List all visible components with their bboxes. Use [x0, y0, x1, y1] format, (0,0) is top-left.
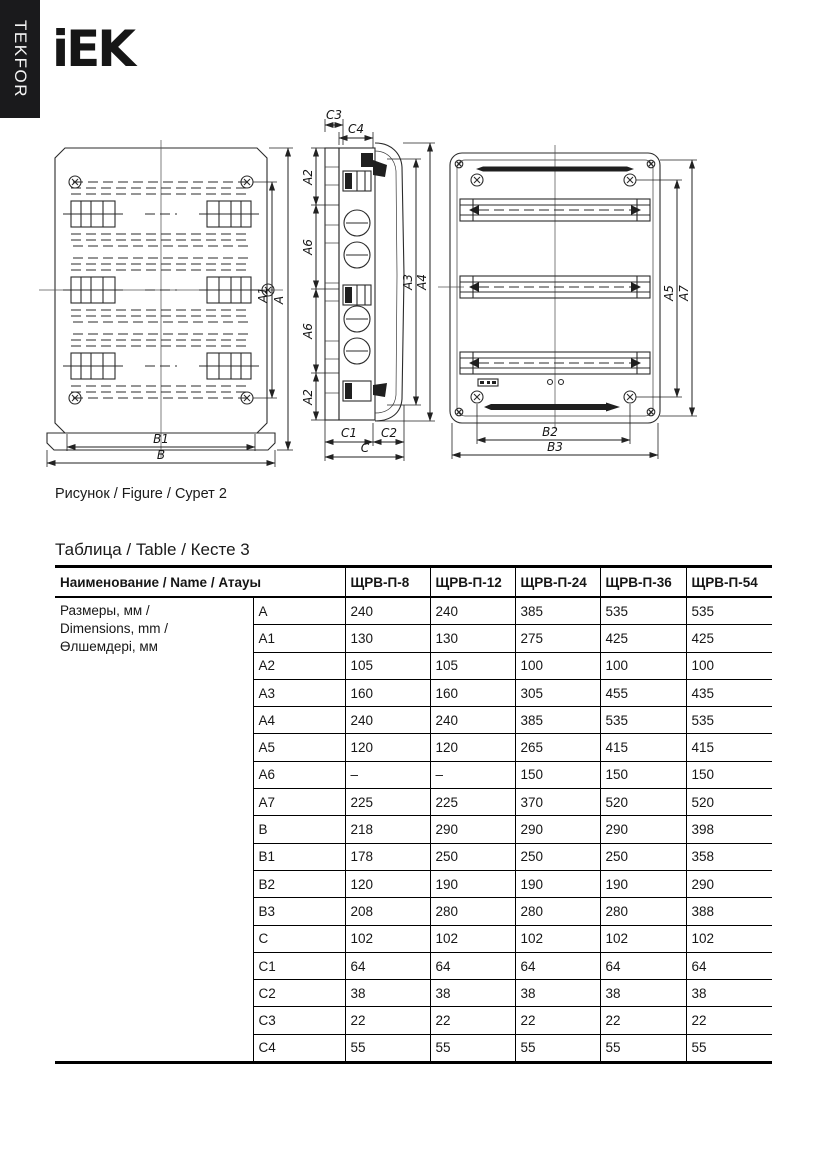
- dimension-cell: C4: [253, 1034, 345, 1062]
- value-cell: 102: [600, 925, 686, 952]
- dim-label-b3: B3: [547, 440, 563, 454]
- table-row: Размеры, мм /Dimensions, mm /Өлшемдері, …: [55, 597, 772, 625]
- value-cell: 38: [515, 980, 600, 1007]
- dim-label-a7: A7: [677, 285, 691, 302]
- table-header-row: Наименование / Name / Атауы ЩРВ-П-8 ЩРВ-…: [55, 567, 772, 598]
- value-cell: 275: [515, 625, 600, 652]
- dimension-cell: A: [253, 597, 345, 625]
- figure-caption: Рисунок / Figure / Сурет 2: [55, 486, 227, 502]
- value-cell: 100: [600, 652, 686, 679]
- value-cell: 225: [430, 789, 515, 816]
- dimension-cell: C1: [253, 952, 345, 979]
- value-cell: 385: [515, 707, 600, 734]
- dimension-cell: C: [253, 925, 345, 952]
- value-cell: 218: [345, 816, 430, 843]
- dim-label-a5: A5: [662, 285, 676, 302]
- catalog-page: TEKFOR iEK: [0, 0, 827, 1166]
- value-cell: 150: [515, 761, 600, 788]
- dim-label-a1: A1: [256, 287, 270, 304]
- value-cell: 250: [515, 843, 600, 870]
- table-header-model: ЩРВ-П-12: [430, 567, 515, 598]
- value-cell: 130: [430, 625, 515, 652]
- dimension-cell: A4: [253, 707, 345, 734]
- value-cell: 55: [430, 1034, 515, 1062]
- dimension-cell: B2: [253, 870, 345, 897]
- value-cell: 240: [345, 597, 430, 625]
- value-cell: 535: [600, 707, 686, 734]
- value-cell: 160: [345, 679, 430, 706]
- value-cell: 64: [515, 952, 600, 979]
- value-cell: 55: [686, 1034, 772, 1062]
- value-cell: 240: [430, 597, 515, 625]
- table-header-model: ЩРВ-П-24: [515, 567, 600, 598]
- dim-label-a2-bottom: A2: [301, 389, 315, 406]
- value-cell: –: [430, 761, 515, 788]
- value-cell: 305: [515, 679, 600, 706]
- value-cell: 55: [345, 1034, 430, 1062]
- value-cell: 290: [600, 816, 686, 843]
- value-cell: 64: [345, 952, 430, 979]
- value-cell: 22: [600, 1007, 686, 1034]
- front-view: A1 A B1 B: [39, 140, 293, 467]
- value-cell: 102: [430, 925, 515, 952]
- table-header-model: ЩРВ-П-36: [600, 567, 686, 598]
- dim-label-b1: B1: [153, 432, 169, 446]
- value-cell: 290: [515, 816, 600, 843]
- value-cell: 190: [430, 870, 515, 897]
- dim-label-b: B: [157, 448, 165, 462]
- side-view: C3 C4 A2 A6 A6 A2 A3: [301, 108, 435, 461]
- table-header-model: ЩРВ-П-8: [345, 567, 430, 598]
- value-cell: 388: [686, 898, 772, 925]
- value-cell: 38: [686, 980, 772, 1007]
- value-cell: 55: [515, 1034, 600, 1062]
- value-cell: 38: [430, 980, 515, 1007]
- dimension-cell: B: [253, 816, 345, 843]
- value-cell: 265: [515, 734, 600, 761]
- dim-label-a6-upper: A6: [301, 239, 315, 256]
- value-cell: 280: [600, 898, 686, 925]
- value-cell: 105: [430, 652, 515, 679]
- dim-label-c2: C2: [381, 426, 397, 440]
- dim-label-b2: B2: [542, 425, 558, 439]
- value-cell: 160: [430, 679, 515, 706]
- value-cell: 385: [515, 597, 600, 625]
- value-cell: 208: [345, 898, 430, 925]
- value-cell: 280: [515, 898, 600, 925]
- dimension-cell: A3: [253, 679, 345, 706]
- value-cell: 100: [515, 652, 600, 679]
- tekfor-side-tab: TEKFOR: [0, 0, 40, 118]
- dim-label-a4: A4: [415, 274, 429, 291]
- screw-icon: [624, 391, 636, 403]
- figure-2-drawings: A1 A B1 B: [35, 85, 735, 477]
- dim-label-a3: A3: [401, 274, 415, 291]
- value-cell: 240: [345, 707, 430, 734]
- table-caption: Таблица / Table / Кесте 3: [55, 540, 250, 560]
- value-cell: 105: [345, 652, 430, 679]
- value-cell: 55: [600, 1034, 686, 1062]
- value-cell: 64: [686, 952, 772, 979]
- value-cell: 100: [686, 652, 772, 679]
- value-cell: 102: [686, 925, 772, 952]
- dimension-cell: A1: [253, 625, 345, 652]
- value-cell: 102: [345, 925, 430, 952]
- value-cell: 398: [686, 816, 772, 843]
- value-cell: 64: [600, 952, 686, 979]
- dimensions-table: Наименование / Name / Атауы ЩРВ-П-8 ЩРВ-…: [55, 565, 772, 1064]
- value-cell: 38: [600, 980, 686, 1007]
- value-cell: 150: [600, 761, 686, 788]
- value-cell: 425: [686, 625, 772, 652]
- screw-icon: [471, 391, 483, 403]
- value-cell: 415: [686, 734, 772, 761]
- value-cell: 150: [686, 761, 772, 788]
- value-cell: 535: [600, 597, 686, 625]
- value-cell: 250: [600, 843, 686, 870]
- value-cell: 120: [345, 870, 430, 897]
- value-cell: 250: [430, 843, 515, 870]
- dimension-cell: A2: [253, 652, 345, 679]
- value-cell: 358: [686, 843, 772, 870]
- dim-label-c1: C1: [341, 426, 357, 440]
- dimension-cell: C3: [253, 1007, 345, 1034]
- value-cell: 120: [430, 734, 515, 761]
- value-cell: 130: [345, 625, 430, 652]
- tekfor-label: TEKFOR: [10, 20, 30, 98]
- screw-icon: [471, 174, 483, 186]
- dim-label-c: C: [361, 441, 370, 455]
- dim-label-a: A: [272, 296, 286, 305]
- value-cell: 520: [600, 789, 686, 816]
- value-cell: 240: [430, 707, 515, 734]
- value-cell: 535: [686, 707, 772, 734]
- iek-logo: iEK: [52, 24, 133, 74]
- value-cell: 455: [600, 679, 686, 706]
- value-cell: 520: [686, 789, 772, 816]
- dim-label-c4: C4: [348, 122, 364, 136]
- dim-label-a6-lower: A6: [301, 323, 315, 340]
- brand-stamp: [478, 379, 498, 386]
- value-cell: 190: [600, 870, 686, 897]
- value-cell: 102: [515, 925, 600, 952]
- value-cell: 22: [515, 1007, 600, 1034]
- value-cell: 290: [686, 870, 772, 897]
- dim-label-c3: C3: [326, 108, 342, 122]
- value-cell: 280: [430, 898, 515, 925]
- dimension-cell: A6: [253, 761, 345, 788]
- value-cell: 435: [686, 679, 772, 706]
- table-header-name: Наименование / Name / Атауы: [55, 567, 345, 598]
- dimension-cell: A7: [253, 789, 345, 816]
- value-cell: 38: [345, 980, 430, 1007]
- dimensions-group-label: Размеры, мм /Dimensions, mm /Өлшемдері, …: [55, 597, 253, 1063]
- screw-icon: [647, 408, 655, 416]
- dimension-cell: B1: [253, 843, 345, 870]
- table-header-model: ЩРВ-П-54: [686, 567, 772, 598]
- value-cell: 120: [345, 734, 430, 761]
- value-cell: 425: [600, 625, 686, 652]
- value-cell: 22: [430, 1007, 515, 1034]
- value-cell: 290: [430, 816, 515, 843]
- dimension-cell: B3: [253, 898, 345, 925]
- screw-icon: [455, 160, 463, 168]
- value-cell: 190: [515, 870, 600, 897]
- screw-icon: [455, 408, 463, 416]
- value-cell: 22: [686, 1007, 772, 1034]
- dim-label-a2-top: A2: [301, 169, 315, 186]
- value-cell: 22: [345, 1007, 430, 1034]
- value-cell: 225: [345, 789, 430, 816]
- dimension-cell: A5: [253, 734, 345, 761]
- value-cell: 370: [515, 789, 600, 816]
- value-cell: 535: [686, 597, 772, 625]
- value-cell: 178: [345, 843, 430, 870]
- dimension-cell: C2: [253, 980, 345, 1007]
- value-cell: 64: [430, 952, 515, 979]
- value-cell: 415: [600, 734, 686, 761]
- screw-icon: [647, 160, 655, 168]
- value-cell: –: [345, 761, 430, 788]
- back-view: A5 A7 B2 B3: [438, 145, 697, 459]
- screw-icon: [624, 174, 636, 186]
